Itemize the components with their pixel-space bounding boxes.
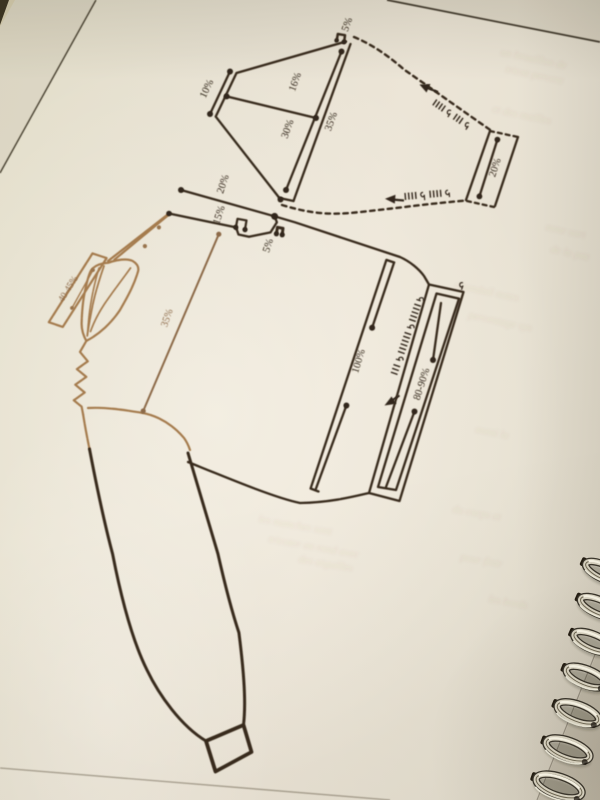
svg-text:de la paz: de la paz — [549, 243, 591, 263]
svg-text:5%: 5% — [340, 16, 355, 33]
svg-text:du corps et: du corps et — [451, 503, 502, 523]
svg-text:percentage sys: percentage sys — [466, 309, 533, 334]
svg-text:les bords: les bords — [487, 593, 528, 612]
svg-text:100%: 100% — [350, 348, 368, 375]
svg-text:mme sort: mme sort — [544, 221, 587, 241]
svg-text:5%: 5% — [261, 237, 276, 254]
svg-text:et des mailles: et des mailles — [491, 103, 552, 127]
svg-text:16%: 16% — [287, 71, 304, 93]
svg-text:80-90%: 80-90% — [412, 366, 433, 401]
svg-text:35%: 35% — [159, 308, 175, 329]
svg-text:10%: 10% — [198, 78, 216, 100]
svg-text:pour finir: pour finir — [458, 551, 504, 570]
svg-text:15%: 15% — [211, 204, 227, 226]
svg-text:30%: 30% — [280, 118, 297, 140]
svg-text:aussi la: aussi la — [474, 423, 510, 442]
svg-text:20%: 20% — [215, 173, 231, 195]
